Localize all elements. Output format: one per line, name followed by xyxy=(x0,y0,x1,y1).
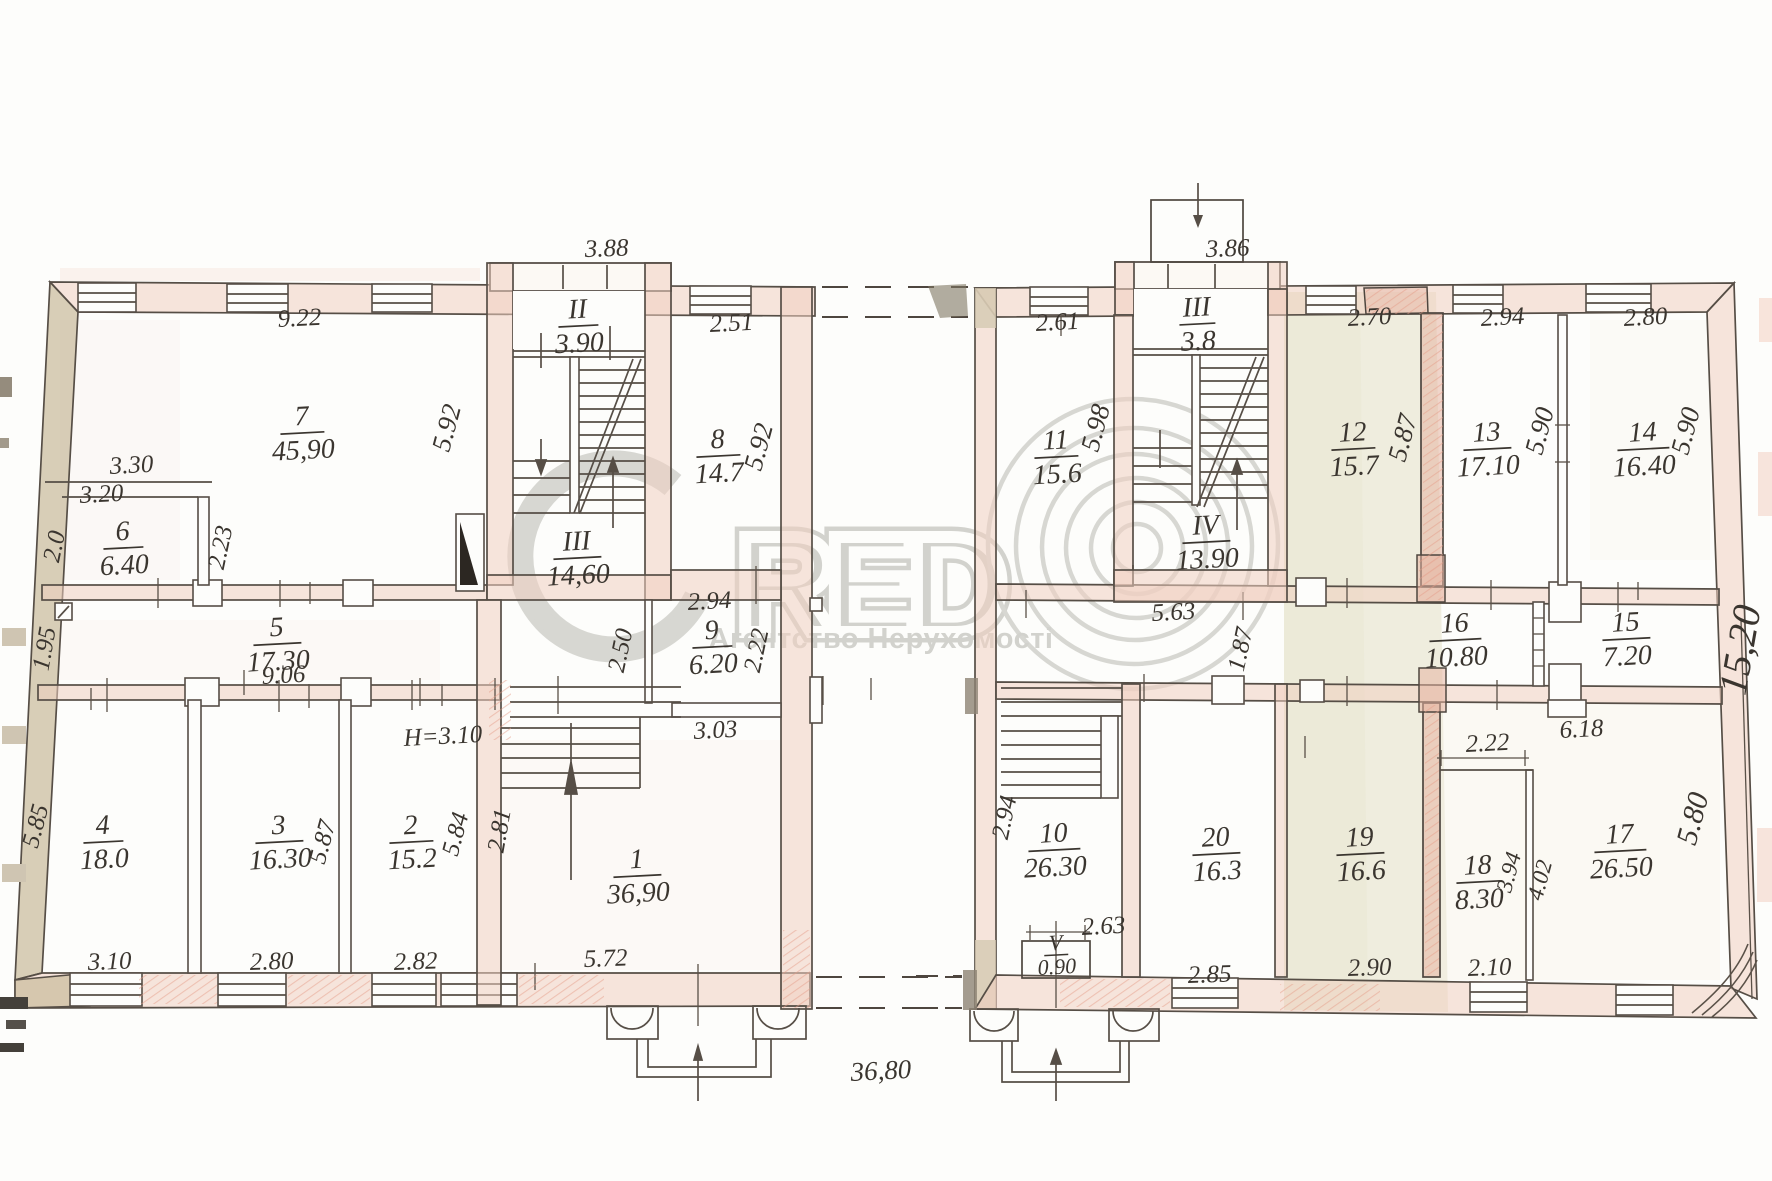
svg-text:14,60: 14,60 xyxy=(546,558,611,592)
svg-text:19: 19 xyxy=(1345,821,1375,853)
svg-text:26.30: 26.30 xyxy=(1023,850,1088,884)
svg-text:III: III xyxy=(1181,291,1213,324)
svg-text:II: II xyxy=(566,293,589,325)
svg-text:2.10: 2.10 xyxy=(1467,953,1512,982)
svg-text:16.6: 16.6 xyxy=(1336,855,1387,889)
svg-text:5.63: 5.63 xyxy=(1151,598,1196,627)
svg-text:3.10: 3.10 xyxy=(86,947,132,976)
svg-text:2: 2 xyxy=(403,810,419,842)
svg-text:13: 13 xyxy=(1472,416,1502,448)
svg-text:2.90: 2.90 xyxy=(1347,953,1392,982)
svg-text:0.90: 0.90 xyxy=(1037,953,1077,980)
svg-text:14: 14 xyxy=(1628,416,1658,448)
svg-text:2.85: 2.85 xyxy=(1187,960,1232,989)
svg-text:5.72: 5.72 xyxy=(583,944,628,973)
svg-text:13.90: 13.90 xyxy=(1175,542,1240,576)
svg-text:3.30: 3.30 xyxy=(108,451,155,480)
svg-text:3.03: 3.03 xyxy=(692,716,738,745)
svg-text:2.61: 2.61 xyxy=(1035,308,1080,337)
svg-text:2.63: 2.63 xyxy=(1081,912,1126,941)
svg-text:16: 16 xyxy=(1440,607,1470,639)
svg-text:6.20: 6.20 xyxy=(688,648,739,682)
svg-text:III: III xyxy=(561,525,593,558)
svg-text:20: 20 xyxy=(1201,821,1231,853)
svg-text:2.94: 2.94 xyxy=(687,587,732,616)
svg-text:15: 15 xyxy=(1611,606,1641,638)
svg-text:9: 9 xyxy=(704,615,720,647)
svg-text:10.80: 10.80 xyxy=(1424,640,1489,674)
svg-text:3: 3 xyxy=(270,810,287,842)
svg-text:36,90: 36,90 xyxy=(605,876,671,910)
svg-text:18.0: 18.0 xyxy=(79,843,130,877)
svg-text:18: 18 xyxy=(1463,849,1493,881)
svg-text:5: 5 xyxy=(269,612,285,644)
svg-text:7.20: 7.20 xyxy=(1602,640,1653,674)
svg-text:10: 10 xyxy=(1039,817,1069,849)
svg-text:8: 8 xyxy=(710,424,726,456)
svg-text:3.90: 3.90 xyxy=(553,327,605,361)
svg-text:2.80: 2.80 xyxy=(1623,303,1669,332)
svg-text:16.40: 16.40 xyxy=(1612,449,1677,483)
svg-text:6.18: 6.18 xyxy=(1559,715,1605,744)
svg-text:IV: IV xyxy=(1191,509,1223,542)
svg-text:2.22: 2.22 xyxy=(1465,729,1510,758)
svg-text:9.06: 9.06 xyxy=(261,661,307,690)
svg-text:15.7: 15.7 xyxy=(1329,450,1381,484)
svg-text:3.20: 3.20 xyxy=(78,480,125,509)
svg-text:15.2: 15.2 xyxy=(387,843,438,877)
svg-text:7: 7 xyxy=(294,401,311,433)
svg-text:9.22: 9.22 xyxy=(277,304,322,333)
svg-text:6: 6 xyxy=(115,516,131,548)
svg-text:1: 1 xyxy=(629,844,645,876)
svg-text:17.10: 17.10 xyxy=(1456,449,1521,483)
svg-text:15.6: 15.6 xyxy=(1032,458,1083,492)
svg-text:3.86: 3.86 xyxy=(1204,234,1250,263)
svg-text:12: 12 xyxy=(1338,416,1368,448)
svg-text:2.94: 2.94 xyxy=(1480,303,1525,332)
svg-text:3.88: 3.88 xyxy=(583,234,629,263)
svg-text:2.80: 2.80 xyxy=(249,947,294,976)
svg-text:36,80: 36,80 xyxy=(849,1054,913,1087)
svg-text:2.51: 2.51 xyxy=(709,309,754,338)
svg-text:H=3.10: H=3.10 xyxy=(402,721,483,752)
svg-text:26.50: 26.50 xyxy=(1589,851,1654,885)
svg-text:2.82: 2.82 xyxy=(393,947,438,976)
svg-text:6.40: 6.40 xyxy=(99,549,150,583)
svg-text:16.30: 16.30 xyxy=(248,842,313,876)
svg-text:17: 17 xyxy=(1605,818,1636,850)
svg-text:45,90: 45,90 xyxy=(271,433,336,467)
svg-text:3.8: 3.8 xyxy=(1179,325,1217,358)
svg-text:11: 11 xyxy=(1042,424,1070,456)
svg-text:16.3: 16.3 xyxy=(1192,855,1243,889)
svg-text:4: 4 xyxy=(95,810,111,842)
